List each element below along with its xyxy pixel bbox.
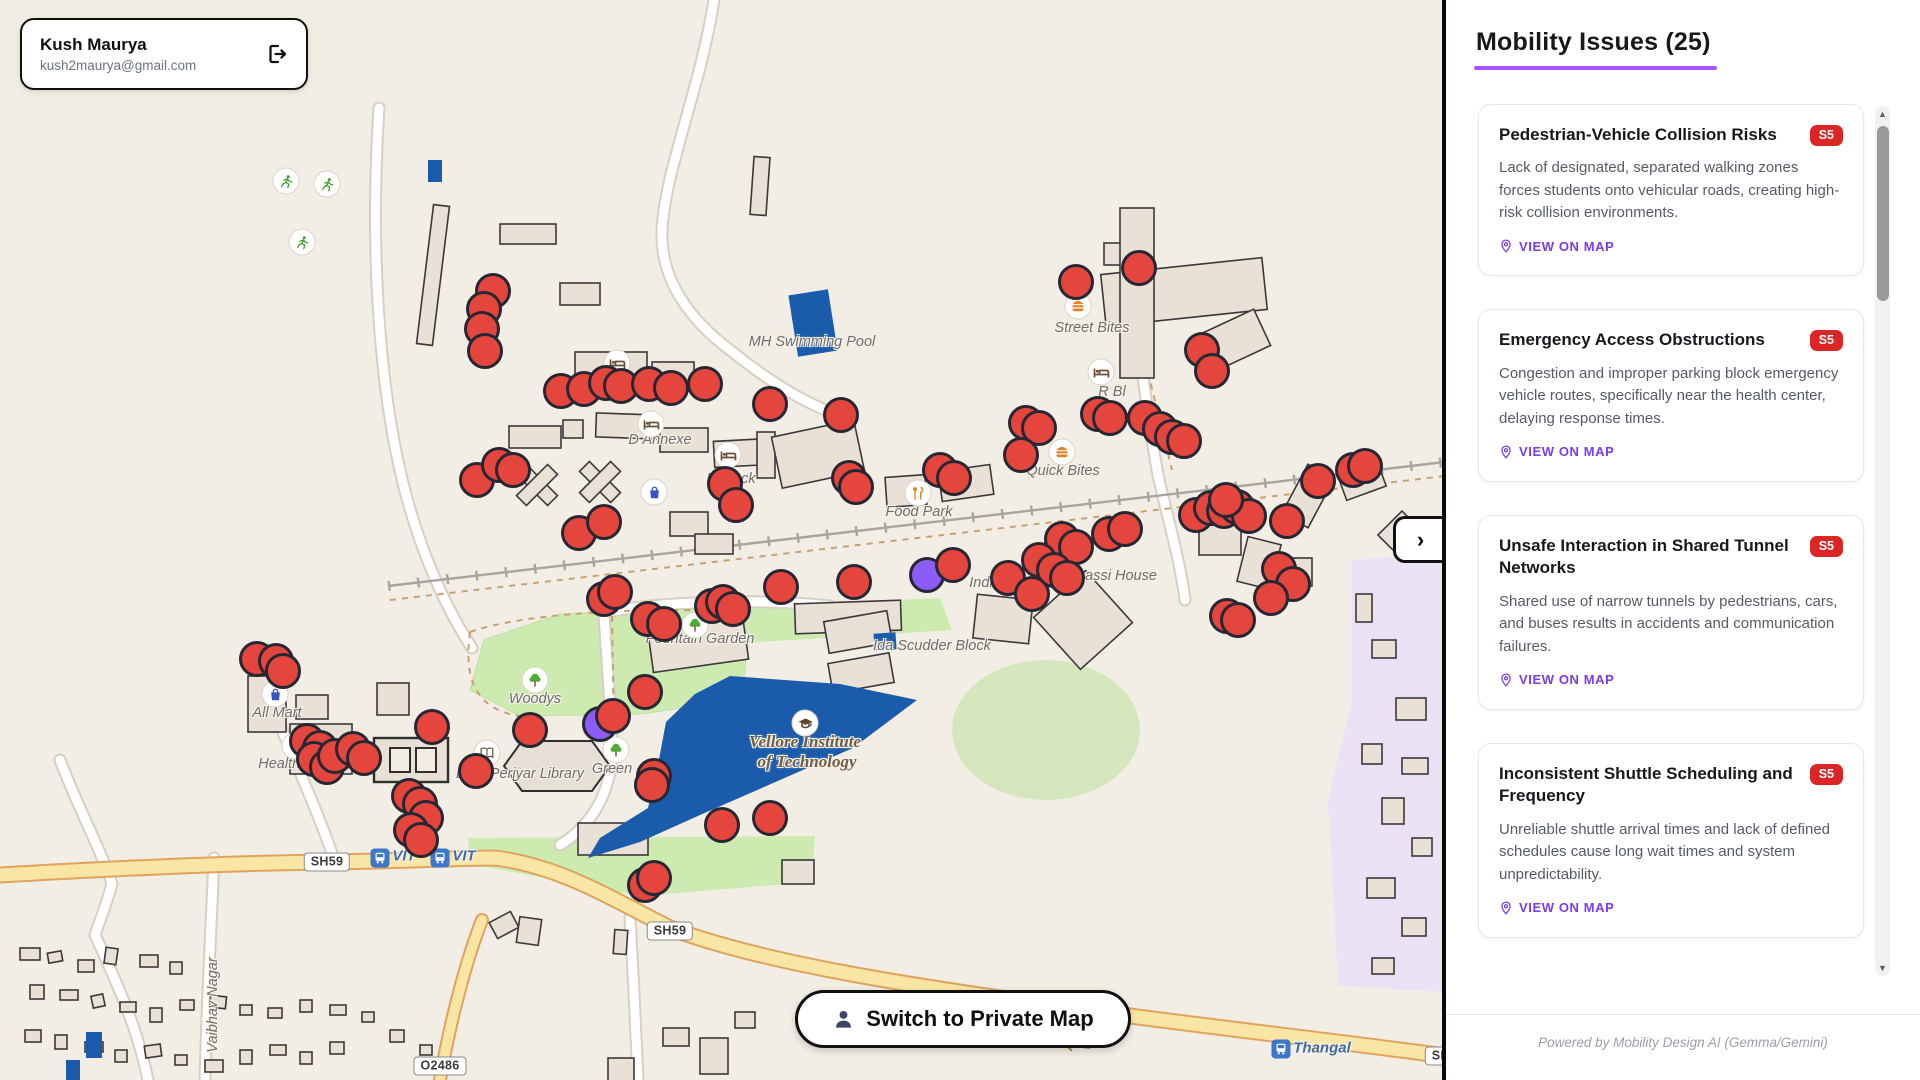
issue-marker[interactable]: [704, 807, 740, 843]
issue-marker[interactable]: [1092, 400, 1128, 436]
user-email: kush2maurya@gmail.com: [40, 58, 252, 73]
issue-marker[interactable]: [458, 753, 494, 789]
issue-marker[interactable]: [467, 333, 503, 369]
issue-marker[interactable]: [763, 569, 799, 605]
sidebar-title: Mobility Issues (25): [1476, 28, 1920, 57]
issue-card[interactable]: Pedestrian-Vehicle Collision Risks S5 La…: [1478, 104, 1864, 276]
issue-marker[interactable]: [1347, 448, 1383, 484]
issue-title: Unsafe Interaction in Shared Tunnel Netw…: [1499, 535, 1800, 580]
x-buildings: [516, 461, 620, 505]
issue-marker[interactable]: [715, 591, 751, 627]
chevron-right-icon: ›: [1417, 527, 1424, 553]
issue-marker[interactable]: [634, 767, 670, 803]
severity-badge: S5: [1810, 330, 1843, 351]
issue-marker[interactable]: [718, 487, 754, 523]
issue-marker[interactable]: [1058, 264, 1094, 300]
scroll-up-arrow[interactable]: ▲: [1875, 109, 1890, 119]
bus-stop-icon: [371, 849, 390, 868]
issue-marker[interactable]: [403, 822, 439, 858]
issue-marker[interactable]: [627, 674, 663, 710]
issue-description: Unreliable shuttle arrival times and lac…: [1499, 819, 1843, 887]
issue-marker[interactable]: [265, 653, 301, 689]
issue-marker[interactable]: [1253, 580, 1289, 616]
roads-white: [60, 0, 1185, 1080]
bag-icon: [641, 479, 668, 506]
view-on-map-link[interactable]: VIEW ON MAP: [1499, 672, 1614, 687]
issue-marker[interactable]: [1049, 560, 1085, 596]
issue-marker[interactable]: [1014, 576, 1050, 612]
issue-card[interactable]: Unsafe Interaction in Shared Tunnel Netw…: [1478, 515, 1864, 710]
runner-icon: [273, 168, 300, 195]
issue-title: Pedestrian-Vehicle Collision Risks: [1499, 124, 1800, 146]
road-casings: [60, 0, 1185, 1080]
issue-card[interactable]: Inconsistent Shuttle Scheduling and Freq…: [1478, 743, 1864, 938]
issue-marker[interactable]: [597, 574, 633, 610]
title-accent-underline: [1474, 66, 1717, 70]
issue-marker[interactable]: [595, 698, 631, 734]
issue-marker[interactable]: [752, 386, 788, 422]
view-on-map-link[interactable]: VIEW ON MAP: [1499, 900, 1614, 915]
issue-marker[interactable]: [1269, 503, 1305, 539]
issue-marker[interactable]: [1208, 482, 1244, 518]
view-on-map-link[interactable]: VIEW ON MAP: [1499, 239, 1614, 254]
severity-badge: S5: [1810, 764, 1843, 785]
road-ref-badge: SH59: [647, 922, 693, 941]
issue-marker[interactable]: [636, 860, 672, 896]
cap-icon: [792, 710, 819, 737]
switch-map-label: Switch to Private Map: [866, 1006, 1093, 1032]
issue-marker[interactable]: [687, 366, 723, 402]
sidebar-footer: Powered by Mobility Design AI (Gemma/Gem…: [1446, 1014, 1920, 1080]
scrollbar-thumb[interactable]: [1877, 126, 1889, 301]
issue-marker[interactable]: [823, 397, 859, 433]
map-pin-icon: [1499, 445, 1513, 459]
issue-marker[interactable]: [495, 452, 531, 488]
issue-title: Emergency Access Obstructions: [1499, 329, 1800, 351]
issue-marker[interactable]: [1220, 602, 1256, 638]
issue-marker[interactable]: [1107, 511, 1143, 547]
issue-marker[interactable]: [346, 740, 382, 776]
issue-marker[interactable]: [838, 469, 874, 505]
bus-stop-icon: [1272, 1040, 1291, 1059]
view-on-map-link[interactable]: VIEW ON MAP: [1499, 444, 1614, 459]
bed-icon: [638, 411, 665, 438]
swimming-pool: [788, 289, 837, 356]
runner-icon: [314, 171, 341, 198]
issues-sidebar: Mobility Issues (25) Pedestrian-Vehicle …: [1442, 0, 1920, 1080]
issue-marker[interactable]: [1121, 250, 1157, 286]
issue-marker[interactable]: [1003, 437, 1039, 473]
severity-badge: S5: [1810, 536, 1843, 557]
issue-marker[interactable]: [414, 709, 450, 745]
issue-marker[interactable]: [653, 370, 689, 406]
issue-marker[interactable]: [935, 547, 971, 583]
map-pin-icon: [1499, 239, 1513, 253]
app: MH Swimming PoolStreet BitesR BlQuick Bi…: [0, 0, 1920, 1080]
map-pin-icon: [1499, 673, 1513, 687]
switch-map-button[interactable]: Switch to Private Map: [795, 990, 1131, 1048]
issue-marker[interactable]: [936, 460, 972, 496]
road-ref-badge: SH59: [304, 853, 350, 872]
scroll-down-arrow[interactable]: ▼: [1875, 963, 1890, 973]
issue-marker[interactable]: [1194, 353, 1230, 389]
issue-marker[interactable]: [1166, 423, 1202, 459]
tree-icon: [522, 667, 549, 694]
issue-marker[interactable]: [1300, 463, 1336, 499]
bed-icon: [715, 442, 742, 469]
issue-title: Inconsistent Shuttle Scheduling and Freq…: [1499, 763, 1800, 808]
issue-description: Shared use of narrow tunnels by pedestri…: [1499, 591, 1843, 659]
issue-description: Congestion and improper parking block em…: [1499, 363, 1843, 431]
user-name: Kush Maurya: [40, 35, 252, 55]
map-canvas[interactable]: MH Swimming PoolStreet BitesR BlQuick Bi…: [0, 0, 1445, 1080]
runner-icon: [289, 229, 316, 256]
issue-marker[interactable]: [512, 712, 548, 748]
user-card: Kush Maurya kush2maurya@gmail.com: [20, 18, 308, 90]
sidebar-scrollbar[interactable]: ▲ ▼: [1875, 106, 1890, 976]
bed-icon: [1088, 359, 1115, 386]
issue-description: Lack of designated, separated walking zo…: [1499, 157, 1843, 225]
issue-card-list: Pedestrian-Vehicle Collision Risks S5 La…: [1478, 104, 1864, 938]
logout-icon[interactable]: [264, 42, 288, 66]
issue-marker[interactable]: [752, 800, 788, 836]
issue-card[interactable]: Emergency Access Obstructions S5 Congest…: [1478, 309, 1864, 481]
issue-marker[interactable]: [646, 606, 682, 642]
person-icon: [832, 1008, 855, 1031]
burger-icon: [1049, 439, 1076, 466]
sidebar-collapse-button[interactable]: ›: [1393, 516, 1445, 563]
road-ref-badge: O2486: [413, 1057, 466, 1076]
issue-marker[interactable]: [586, 504, 622, 540]
park-east: [952, 660, 1140, 800]
basemap-tiles: [0, 0, 1445, 1080]
issue-marker[interactable]: [836, 564, 872, 600]
severity-badge: S5: [1810, 125, 1843, 146]
map-pin-icon: [1499, 901, 1513, 915]
